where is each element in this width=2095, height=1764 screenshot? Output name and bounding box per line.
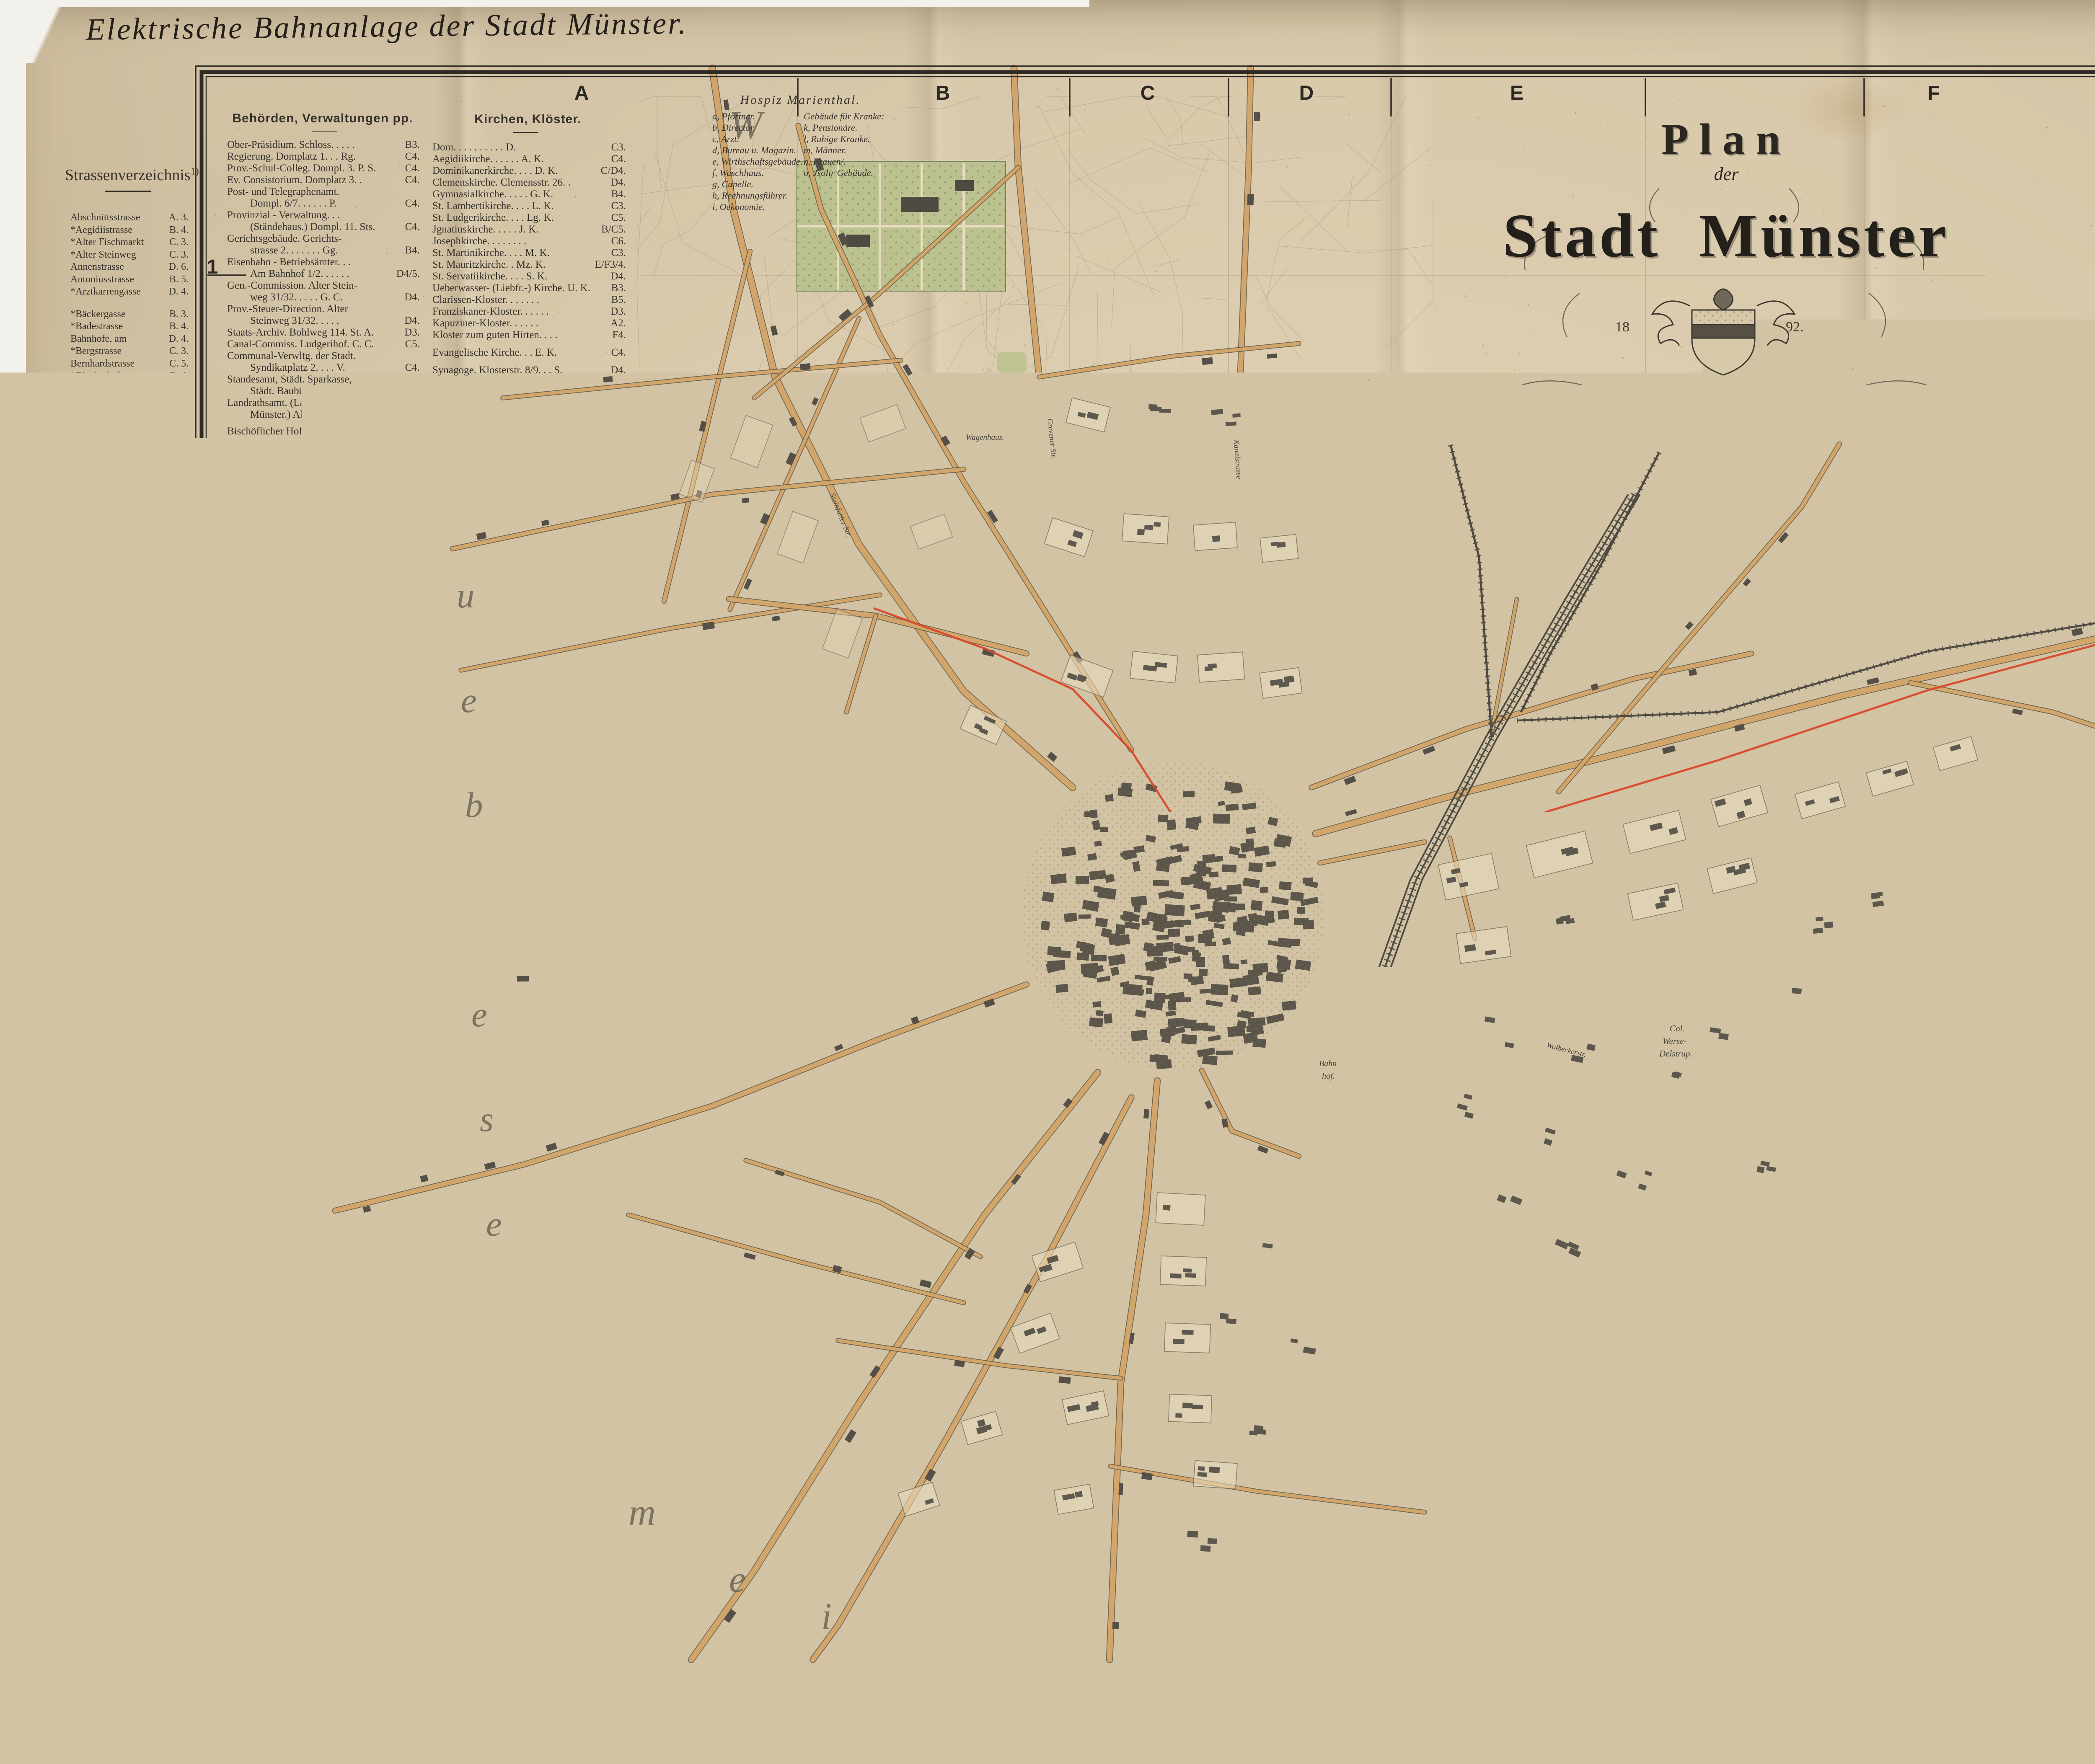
svg-text:A: A bbox=[574, 82, 589, 104]
svg-text:r: r bbox=[1146, 274, 1160, 313]
svg-text:E: E bbox=[1510, 82, 1523, 104]
svg-text:i: i bbox=[821, 1596, 832, 1637]
svg-text:r: r bbox=[1582, 1355, 1596, 1395]
svg-text:B: B bbox=[936, 82, 950, 104]
svg-text:Train: Train bbox=[1314, 1535, 1331, 1544]
svg-text:n: n bbox=[1156, 222, 1173, 259]
svg-text:e: e bbox=[1071, 248, 1086, 288]
svg-text:I: I bbox=[1235, 835, 1241, 854]
svg-text:Festhalle: Festhalle bbox=[833, 625, 865, 634]
svg-text:Baumschule: Baumschule bbox=[798, 662, 841, 672]
svg-text:Domplatz.: Domplatz. bbox=[1108, 838, 1146, 848]
svg-text:Josephskirche.: Josephskirche. bbox=[1240, 1449, 1290, 1458]
svg-text:2: 2 bbox=[207, 580, 218, 602]
svg-text:Brauerei: Brauerei bbox=[1071, 1434, 1099, 1443]
svg-text:i: i bbox=[1655, 444, 1666, 486]
svg-text:Mecklenbecker Str.: Mecklenbecker Str. bbox=[891, 1374, 930, 1427]
svg-text:M: M bbox=[1964, 574, 2000, 618]
svg-text:Das: Das bbox=[800, 1117, 818, 1129]
svg-text:0: 0 bbox=[1773, 1522, 1777, 1531]
svg-text:500: 500 bbox=[1904, 1547, 1916, 1555]
svg-text:Garten: Garten bbox=[746, 789, 768, 798]
svg-text:F: F bbox=[1927, 82, 1940, 104]
svg-text:II: II bbox=[1083, 787, 1096, 806]
svg-text:Städt:: Städt: bbox=[945, 240, 964, 249]
svg-text:e: e bbox=[461, 681, 477, 720]
svg-text:anstalt: anstalt bbox=[1265, 1401, 1287, 1410]
svg-text:I: I bbox=[1124, 1351, 1130, 1369]
svg-text:Werse-: Werse- bbox=[1663, 1036, 1687, 1046]
svg-text:Himmelreich: Himmelreich bbox=[850, 1121, 907, 1134]
svg-text:III: III bbox=[814, 886, 833, 904]
svg-text:m: m bbox=[1383, 1472, 1408, 1512]
svg-text:n. Wolbeck.: n. Wolbeck. bbox=[1766, 1100, 1807, 1110]
svg-text:II: II bbox=[1301, 1158, 1314, 1177]
svg-text:100: 100 bbox=[1803, 1522, 1815, 1531]
svg-text:D: D bbox=[1299, 82, 1314, 104]
svg-text:4: 4 bbox=[207, 912, 218, 934]
svg-text:Deiters u. Heyl.: Deiters u. Heyl. bbox=[1485, 1397, 1536, 1405]
svg-text:n. Handorf: n. Handorf bbox=[1993, 618, 2044, 637]
svg-text:Kreuzschanze.: Kreuzschanze. bbox=[1152, 643, 1203, 653]
svg-text:1000: 1000 bbox=[2037, 1547, 2053, 1555]
svg-text:Col.: Col. bbox=[1670, 1023, 1685, 1033]
svg-text:800: 800 bbox=[2039, 1522, 2051, 1531]
svg-text:1: 1 bbox=[207, 256, 218, 278]
svg-text:Koburg: Koburg bbox=[689, 330, 714, 339]
svg-text:1125: 1125 bbox=[2071, 1547, 2086, 1555]
svg-text:II: II bbox=[995, 645, 1008, 664]
svg-text:Depot.: Depot. bbox=[1315, 1547, 1337, 1556]
svg-text:e: e bbox=[1592, 360, 1607, 397]
svg-text:Kapuziner: Kapuziner bbox=[666, 586, 701, 595]
svg-text:Waisenhaus: Waisenhaus bbox=[934, 253, 972, 262]
svg-text:i: i bbox=[1492, 327, 1501, 364]
svg-text:500: 500 bbox=[1938, 1522, 1950, 1531]
svg-text:Weberei: Weberei bbox=[846, 1287, 873, 1297]
svg-text:b: b bbox=[465, 785, 483, 825]
svg-text:5: 5 bbox=[207, 1112, 218, 1134]
svg-text:625: 625 bbox=[1938, 1547, 1950, 1555]
svg-text:Münst.: Münst. bbox=[838, 612, 861, 621]
svg-text:e: e bbox=[1261, 260, 1276, 297]
svg-text:400: 400 bbox=[1904, 1522, 1916, 1531]
svg-text:Laboratorium.: Laboratorium. bbox=[2055, 565, 2095, 574]
svg-text:n. Osnabrück.: n. Osnabrück. bbox=[1629, 537, 1660, 576]
svg-text:von Roxel: von Roxel bbox=[488, 952, 520, 961]
svg-text:Badeanstalt: Badeanstalt bbox=[895, 1080, 935, 1089]
svg-text:Windmühle: Windmühle bbox=[754, 431, 792, 440]
svg-text:C: C bbox=[1141, 1638, 1156, 1660]
svg-text:6: 6 bbox=[207, 1432, 218, 1454]
svg-text:Papier Fabrik: Papier Fabrik bbox=[871, 1227, 920, 1236]
svg-text:Platz.: Platz. bbox=[915, 892, 939, 903]
svg-text:n: n bbox=[913, 1617, 932, 1659]
svg-text:III: III bbox=[929, 919, 949, 938]
svg-text:200: 200 bbox=[1836, 1522, 1849, 1531]
svg-text:i: i bbox=[1712, 1209, 1722, 1248]
svg-text:s: s bbox=[993, 219, 1007, 258]
svg-text:I: I bbox=[2075, 582, 2082, 601]
svg-text:z: z bbox=[1814, 970, 1828, 1009]
svg-text:Gerberei: Gerberei bbox=[1605, 527, 1633, 536]
svg-text:Ueberwasser: Ueberwasser bbox=[708, 1020, 750, 1028]
svg-text:d: d bbox=[1387, 293, 1404, 330]
svg-text:Kloster: Kloster bbox=[670, 598, 695, 607]
svg-text:Dampfm. Kiesekamp.: Dampfm. Kiesekamp. bbox=[1395, 1317, 1467, 1326]
svg-text:D: D bbox=[1306, 1638, 1320, 1660]
svg-text:Neuer Krug.: Neuer Krug. bbox=[1022, 1539, 1064, 1548]
svg-text:Schloss: Schloss bbox=[878, 733, 908, 744]
svg-text:Hammer Str.: Hammer Str. bbox=[1130, 1331, 1141, 1370]
svg-text:e: e bbox=[1513, 1405, 1529, 1445]
svg-text:Delstrup.: Delstrup. bbox=[1659, 1049, 1692, 1059]
svg-text:C: C bbox=[1141, 82, 1155, 104]
svg-text:Gas-: Gas- bbox=[1270, 1388, 1285, 1397]
svg-text:Roxeler Strasse: Roxeler Strasse bbox=[586, 955, 634, 965]
svg-text:Sandgrube: Sandgrube bbox=[821, 286, 858, 295]
svg-text:b: b bbox=[1452, 1431, 1470, 1470]
svg-text:125: 125 bbox=[1803, 1547, 1815, 1555]
svg-text:hof.: hof. bbox=[1322, 1072, 1335, 1081]
svg-text:375: 375 bbox=[1870, 1547, 1883, 1555]
svg-text:700: 700 bbox=[2005, 1522, 2017, 1531]
svg-text:900: 900 bbox=[2073, 1522, 2085, 1531]
svg-text:750: 750 bbox=[1972, 1547, 1984, 1555]
svg-text:Schloss-: Schloss- bbox=[846, 691, 877, 702]
svg-text:e: e bbox=[471, 995, 487, 1034]
svg-text:Friedrichsburg: Friedrichsburg bbox=[921, 1461, 972, 1470]
svg-text:Kloster zum guten Hirten.: Kloster zum guten Hirten. bbox=[1852, 932, 1948, 943]
svg-text:e: e bbox=[1936, 486, 1953, 527]
svg-text:Steinfurter Str.: Steinfurter Str. bbox=[828, 492, 853, 538]
svg-text:Botanische: Botanische bbox=[737, 777, 773, 785]
svg-text:600: 600 bbox=[1972, 1522, 1984, 1531]
svg-text:Warendorferstr.: Warendorferstr. bbox=[1796, 694, 1844, 714]
svg-text:A: A bbox=[567, 1638, 582, 1660]
svg-text:t: t bbox=[1655, 1288, 1666, 1328]
svg-text:u: u bbox=[457, 576, 475, 615]
svg-text:I: I bbox=[1622, 849, 1629, 868]
svg-text:Lazareth.: Lazareth. bbox=[976, 594, 1008, 603]
svg-text:III: III bbox=[1103, 1024, 1123, 1043]
svg-text:n. Pleistermühle.: n. Pleistermühle. bbox=[1927, 905, 1987, 915]
svg-text:Westfalia.: Westfalia. bbox=[1071, 1447, 1102, 1456]
svg-text:Wagenhaus.: Wagenhaus. bbox=[966, 433, 1004, 442]
svg-text:Caserne.: Caserne. bbox=[1211, 1562, 1239, 1571]
svg-text:I: I bbox=[1878, 693, 1885, 712]
svg-text:300: 300 bbox=[1870, 1522, 1883, 1531]
svg-text:E: E bbox=[1510, 1638, 1523, 1660]
svg-text:875: 875 bbox=[2005, 1547, 2017, 1555]
svg-text:3: 3 bbox=[207, 773, 218, 795]
svg-text:Train: Train bbox=[1215, 1550, 1232, 1558]
svg-text:Central -Kirchhof: Central -Kirchhof bbox=[712, 989, 786, 1000]
svg-text:0: 0 bbox=[1773, 1547, 1777, 1555]
svg-text:Bahn: Bahn bbox=[1319, 1059, 1337, 1068]
svg-text:F: F bbox=[1927, 1638, 1940, 1660]
svg-text:250: 250 bbox=[1836, 1547, 1849, 1555]
svg-text:B: B bbox=[936, 1638, 950, 1660]
svg-text:Mühle: Mühle bbox=[1567, 907, 1586, 915]
